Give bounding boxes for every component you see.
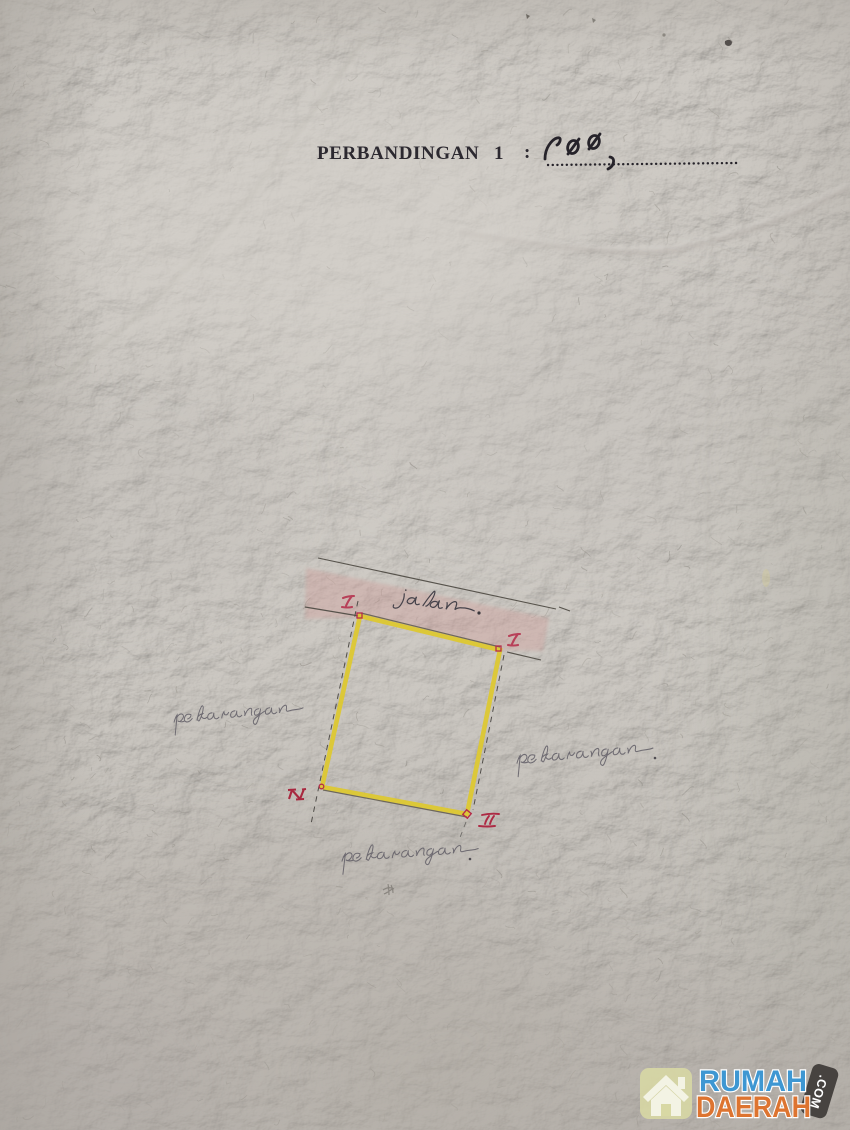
svg-text:DAERAH: DAERAH bbox=[696, 1091, 811, 1124]
